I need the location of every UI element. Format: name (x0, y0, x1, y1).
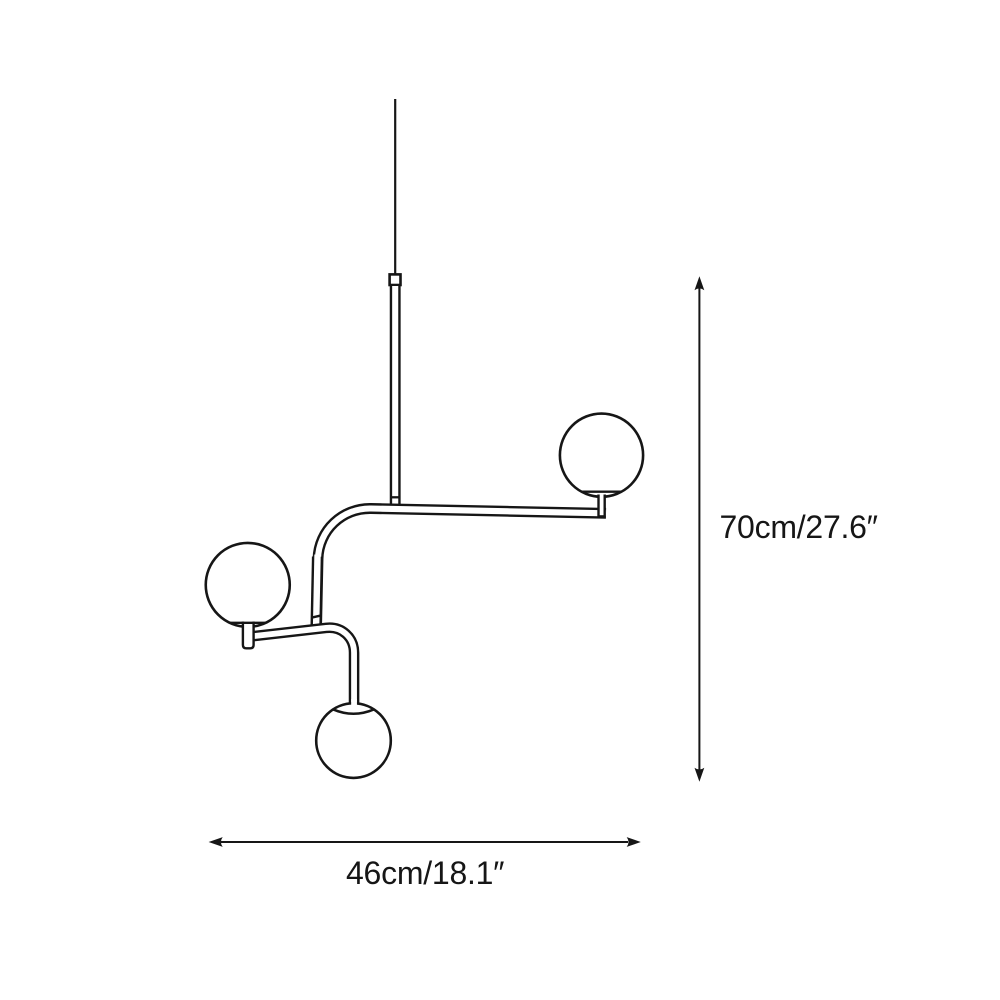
svg-text:46cm/18.1″: 46cm/18.1″ (346, 855, 504, 891)
svg-text:70cm/27.6″: 70cm/27.6″ (720, 509, 878, 545)
